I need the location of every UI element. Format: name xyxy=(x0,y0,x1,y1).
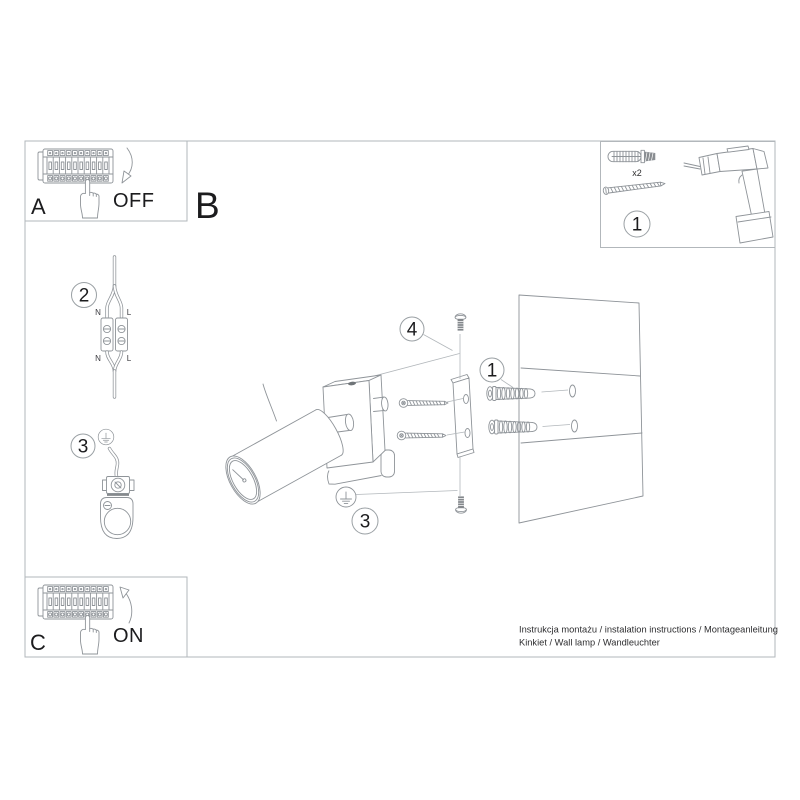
arrow-up-icon xyxy=(120,587,132,623)
step-c-panel: C ON xyxy=(25,577,187,657)
arrow-down-icon xyxy=(122,148,132,183)
wall-bracket xyxy=(451,375,474,458)
ground-bracket-detail: 3 xyxy=(71,429,134,538)
wiring-diagram: 2 N L N L xyxy=(72,257,132,397)
svg-text:3: 3 xyxy=(360,512,371,533)
svg-text:3: 3 xyxy=(78,437,89,458)
callout-1-anchors: 1 xyxy=(480,358,513,388)
bracket-terminal xyxy=(103,477,135,495)
wall-anchor-icon xyxy=(608,150,655,162)
callout-3-center: 3 xyxy=(352,508,378,534)
label-l-bottom: L xyxy=(127,354,132,363)
step-a-panel: A OFF xyxy=(25,141,187,221)
svg-text:2: 2 xyxy=(79,286,90,307)
instruction-sheet-page: A OFF B x2 1 xyxy=(0,0,800,800)
wall-plug-icon-top xyxy=(487,387,535,401)
wall-hole-top xyxy=(570,385,576,397)
mounting-screw-icon-bottom xyxy=(397,431,446,440)
label-l-top: L xyxy=(127,308,132,317)
footer-line1: Instrukcja montażu / instalation instruc… xyxy=(519,625,778,635)
wall xyxy=(519,295,643,523)
wall-plug-icon-bottom xyxy=(489,420,537,434)
machine-screw-icon-top xyxy=(455,314,466,331)
step-a-label: A xyxy=(31,194,46,219)
footer-text: Instrukcja montażu / instalation instruc… xyxy=(519,625,778,648)
hand-icon xyxy=(81,616,100,654)
footer-line2: Kinkiet / Wall lamp / Wandleuchter xyxy=(519,638,660,648)
step-c-label: C xyxy=(30,630,46,655)
callout-3-left: 3 xyxy=(71,434,95,458)
section-b-label: B xyxy=(195,185,220,226)
anchor-quantity: x2 xyxy=(632,168,642,178)
label-n-bottom: N xyxy=(95,354,101,363)
lamp-cable xyxy=(263,384,277,421)
on-label: ON xyxy=(113,625,144,647)
callout-2: 2 xyxy=(72,283,97,308)
breaker-panel-icon xyxy=(38,585,113,619)
mounting-base xyxy=(101,498,134,539)
ground-symbol-icon-center xyxy=(336,487,356,507)
parts-callout-1: 1 xyxy=(624,211,650,237)
svg-text:4: 4 xyxy=(407,320,418,341)
off-label: OFF xyxy=(113,190,155,212)
screw-icon xyxy=(603,180,666,195)
label-n-top: N xyxy=(95,308,101,317)
wall-hole-bottom xyxy=(572,420,578,432)
instruction-diagram: A OFF B x2 1 xyxy=(0,0,800,800)
machine-screw-icon-bottom xyxy=(456,496,467,513)
breaker-panel-icon xyxy=(38,149,113,183)
spotlight-body xyxy=(219,405,349,509)
ground-symbol-icon xyxy=(98,429,114,445)
ground-leader xyxy=(356,491,458,495)
mounting-screw-icon-top xyxy=(399,399,448,408)
sheet-frame xyxy=(25,141,775,657)
callout-4: 4 xyxy=(400,317,453,351)
terminal-block xyxy=(101,318,128,351)
hand-icon xyxy=(81,180,100,218)
parts-box: x2 1 xyxy=(601,142,776,248)
exploded-view: 1 4 xyxy=(219,295,643,534)
svg-text:1: 1 xyxy=(632,215,643,236)
drill-icon xyxy=(684,146,773,243)
svg-text:1: 1 xyxy=(487,361,498,382)
